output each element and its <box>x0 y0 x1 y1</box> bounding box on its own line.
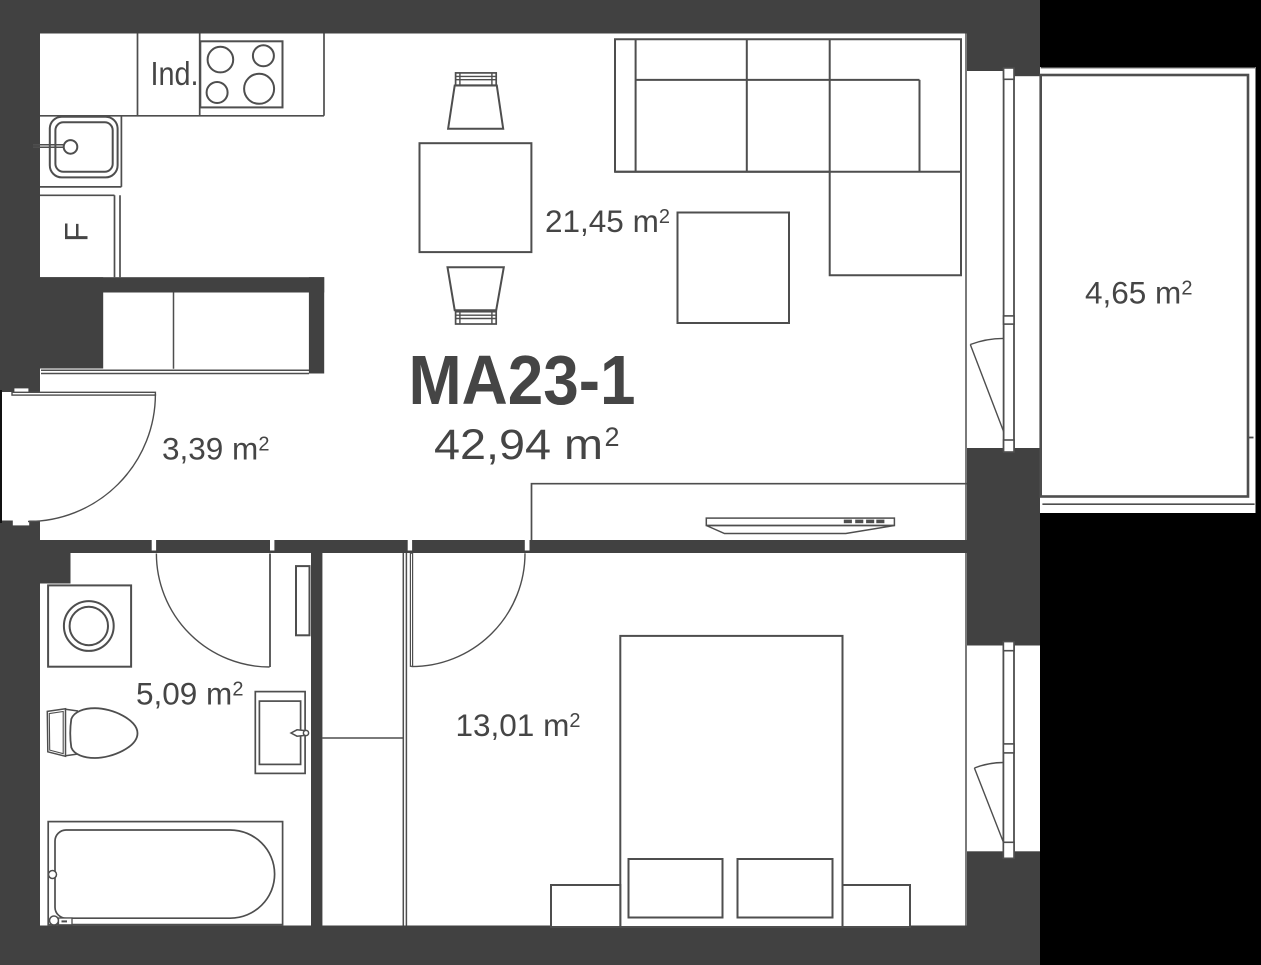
svg-text:2: 2 <box>605 422 620 452</box>
svg-text:F: F <box>59 222 95 242</box>
svg-text:MA23-1: MA23-1 <box>409 341 636 419</box>
svg-text:5,09 m2: 5,09 m2 <box>136 676 243 712</box>
svg-text:Ind.: Ind. <box>151 55 199 92</box>
svg-text:4,65 m2: 4,65 m2 <box>1085 275 1192 311</box>
svg-text:21,45 m2: 21,45 m2 <box>545 203 670 239</box>
svg-text:42,94 m: 42,94 m <box>434 421 603 469</box>
svg-text:13,01 m2: 13,01 m2 <box>456 707 581 743</box>
svg-text:3,39 m2: 3,39 m2 <box>162 431 269 467</box>
